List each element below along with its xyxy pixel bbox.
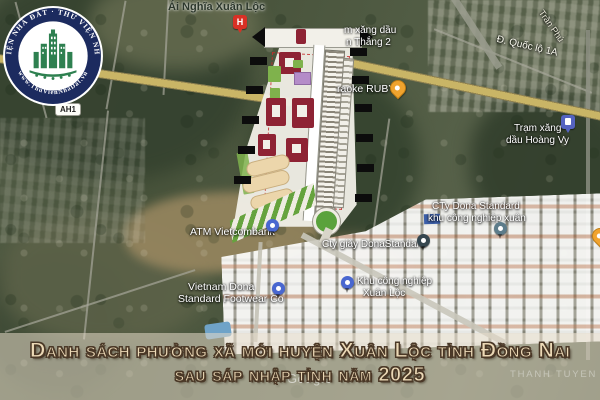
plan-side-access	[234, 176, 251, 184]
footwear-label-line1: Vietnam Dona	[188, 282, 254, 294]
plan-side-access	[357, 164, 374, 172]
plan-side-access	[355, 194, 372, 202]
atm-vietcombank-label: ATM Vietcombank	[190, 227, 275, 239]
plan-side-access	[242, 116, 259, 124]
plan-side-access	[250, 57, 267, 65]
gas-station-label-line2: n Thắng 2	[346, 37, 391, 49]
plan-road-arrow-left	[252, 27, 265, 47]
plan-courtyard	[297, 105, 307, 117]
gas-hoang-vy-label-line2: dầu Hoàng Vy	[506, 135, 569, 147]
plan-side-access	[350, 48, 367, 56]
gas-station-label-line1: m xăng dầu	[344, 25, 396, 37]
karaoke-label: raoke RUBY	[337, 84, 395, 96]
plan-side-access	[355, 104, 372, 112]
title-banner: Google THANH TUYEN Danh sách phường xã m…	[0, 333, 600, 400]
plan-mixed-use-block	[294, 72, 311, 85]
plan-green-space	[268, 66, 281, 82]
gas-pump-marker-icon	[561, 115, 575, 129]
industrial-park-marker-icon	[341, 276, 354, 289]
gas-hoang-vy-label-line1: Trạm xăng	[514, 123, 561, 135]
village-label: Ái Nghĩa Xuân Lộc	[168, 2, 265, 14]
plan-green-space	[293, 60, 303, 68]
industrial-park-label-line2: Xuân Lộc	[363, 288, 405, 300]
plan-side-access	[356, 134, 373, 142]
factory-marker-icon	[417, 234, 430, 247]
plan-courtyard	[263, 140, 270, 149]
hotel-marker-letter: H	[237, 17, 244, 27]
map-screenshot: Ái Nghĩa Xuân Lộc H m xăng dầu n Thắng 2…	[0, 0, 600, 400]
banner-title-line1: Danh sách phường xã mới huyện Xuân Lộc t…	[0, 338, 600, 363]
shoe-factory-label: Cty giày DonaStandard	[322, 239, 425, 251]
hotel-marker-icon: H	[233, 15, 247, 29]
dona-standard-label-line2: khu công nghiệp xuân	[428, 213, 526, 225]
footwear-label-line2: Standard Footwear Co	[178, 294, 284, 306]
plan-side-access	[246, 86, 263, 94]
footwear-marker-icon	[272, 282, 285, 295]
atm-marker-icon	[266, 219, 279, 232]
plan-building	[296, 29, 306, 44]
dona-standard-marker-icon	[494, 222, 507, 235]
banner-title-line2: sau sáp nhập tỉnh năm 2025	[0, 364, 600, 387]
plan-side-access	[238, 146, 255, 154]
plan-courtyard	[292, 144, 301, 153]
plan-courtyard	[272, 105, 280, 117]
industrial-park-label-line1: Khu công nghiệp	[357, 276, 432, 288]
dona-standard-label-line1: CTy Dona Standard	[432, 201, 520, 213]
thuviennhadat-logo: THƯ VIỆN NHÀ ĐẤT · THƯ VIỆN NHÀ ĐẤT www.…	[2, 5, 104, 107]
